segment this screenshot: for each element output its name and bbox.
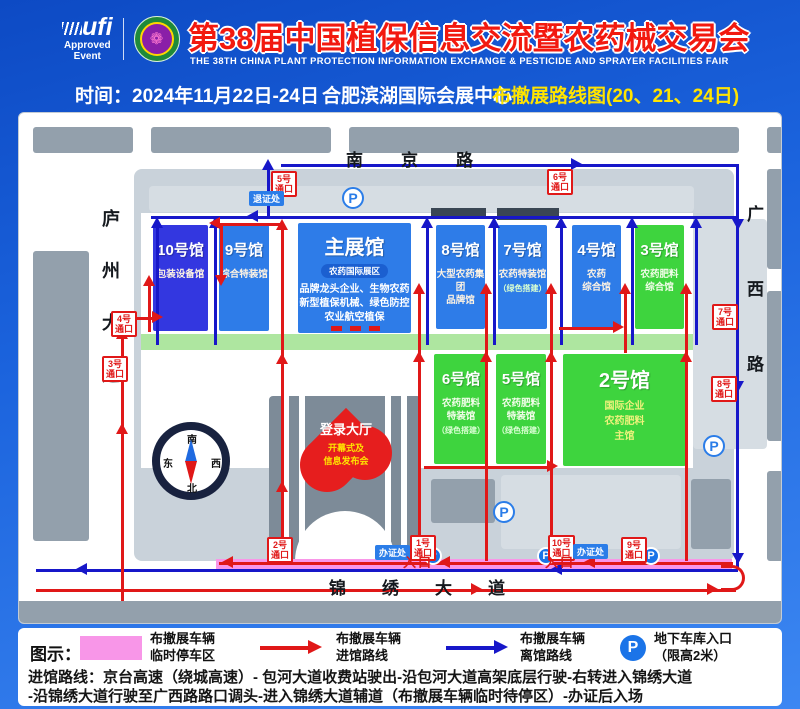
hall-3-sub2: 综合馆 bbox=[645, 281, 674, 294]
hall-main-line1: 品牌龙头企业、生物农药 bbox=[300, 283, 410, 296]
parking-icon: P bbox=[703, 435, 725, 457]
badge-checkout: 退证处 bbox=[249, 191, 284, 206]
route-dashes-red bbox=[331, 326, 381, 331]
route-line-red bbox=[685, 293, 688, 561]
hall-4-sub1: 农药 bbox=[587, 268, 606, 281]
hall-6-sub1: 农药肥料 bbox=[442, 397, 480, 410]
legend-blue-arrow bbox=[446, 646, 496, 650]
city-block bbox=[767, 471, 782, 561]
legend-item4: 地下车库入口 （限高2米） bbox=[654, 630, 732, 664]
arrowhead-red bbox=[613, 321, 624, 333]
south-parking-slab bbox=[501, 475, 681, 549]
arrowhead-red bbox=[222, 556, 233, 568]
arrowhead-red bbox=[215, 275, 227, 286]
info-time: 时间：2024年11月22日-24日 bbox=[75, 81, 319, 108]
header-divider bbox=[123, 18, 124, 60]
hall-3: 3号馆 农药肥料 综合馆 bbox=[635, 225, 684, 329]
gate-9-word: 通口 bbox=[625, 550, 643, 560]
hall-7-sub1: 农药特装馆 bbox=[499, 268, 547, 281]
badge-checkin-2: 办证处 bbox=[573, 544, 608, 559]
hall-6: 6号馆 农药肥料 特装馆 （绿色搭建） bbox=[434, 354, 488, 464]
route-map-title: 布撤展路线图(20、21、24日) bbox=[492, 81, 739, 108]
compass-icon: 南 北 东 西 bbox=[152, 422, 230, 500]
hall-main-line2: 新型植保机械、绿色防控 bbox=[300, 297, 410, 310]
north-parking-strip bbox=[149, 186, 694, 212]
legend-item3: 布撤展车辆 离馆路线 bbox=[520, 630, 585, 664]
fair-title: 第38届中国植保信息交流暨农药械交易会 bbox=[188, 13, 749, 58]
gate-8: 8号 通口 bbox=[711, 376, 737, 402]
arrowhead-blue bbox=[421, 217, 433, 228]
road-south-label: 锦绣大道 bbox=[329, 574, 541, 599]
arrowhead-red bbox=[680, 283, 692, 294]
entrance-label-2: 入口 bbox=[545, 552, 575, 571]
arrowhead-red bbox=[152, 311, 163, 323]
gate-3: 3号 通口 bbox=[102, 356, 128, 382]
green-walkway bbox=[141, 334, 693, 350]
building-detail bbox=[401, 396, 407, 561]
road-north-label: 南京路 bbox=[346, 146, 511, 171]
entrance-label: 入口 bbox=[403, 552, 433, 571]
arrowhead-red bbox=[276, 481, 288, 492]
route-line-red bbox=[418, 293, 421, 561]
legend-item3-line2: 离馆路线 bbox=[520, 647, 585, 664]
hall-7: 7号馆 农药特装馆 （绿色搭建） bbox=[498, 225, 547, 329]
gate-9-num: 9号 bbox=[625, 540, 643, 550]
hall-6-note: （绿色搭建） bbox=[437, 425, 485, 436]
arrowhead-blue bbox=[151, 217, 163, 228]
gate-7-num: 7号 bbox=[716, 307, 734, 317]
ufi-approved: Approved bbox=[62, 40, 113, 51]
arrowhead-red bbox=[480, 351, 492, 362]
compass-needle-red bbox=[185, 461, 197, 484]
gate-6-num: 6号 bbox=[551, 172, 569, 182]
hall-2: 2号馆 国际企业 农药肥料 主馆 bbox=[563, 354, 686, 466]
route-line-red bbox=[148, 284, 151, 332]
hall-5-sub1: 农药肥料 bbox=[502, 397, 540, 410]
legend-blue-arrowhead bbox=[494, 640, 508, 654]
gate-8-num: 8号 bbox=[715, 379, 733, 389]
hall-7-name: 7号馆 bbox=[503, 239, 541, 260]
arrowhead-red bbox=[545, 283, 557, 294]
legend-heading: 图示： bbox=[30, 640, 81, 665]
login-hall-title: 登录大厅 bbox=[300, 419, 392, 438]
hall-8: 8号馆 大型农药集团 品牌馆 bbox=[436, 225, 485, 329]
hall-8-name: 8号馆 bbox=[441, 239, 479, 260]
arrowhead-red bbox=[707, 583, 718, 595]
city-block bbox=[767, 127, 782, 153]
gate-9: 9号 通口 bbox=[621, 537, 647, 563]
hall-3-sub1: 农药肥料 bbox=[640, 268, 678, 281]
hall-6-name: 6号馆 bbox=[442, 368, 480, 389]
legend-item4-line2: （限高2米） bbox=[654, 647, 732, 664]
parking-icon: P bbox=[493, 501, 515, 523]
route-line-red bbox=[485, 293, 488, 561]
hall-7-note: （绿色搭建） bbox=[499, 283, 547, 294]
city-block bbox=[151, 127, 331, 153]
legend-red-arrow bbox=[260, 646, 310, 650]
arrowhead-blue bbox=[76, 563, 87, 575]
gate-2-word: 通口 bbox=[271, 550, 289, 560]
login-hall-sub2: 信息发布会 bbox=[300, 454, 392, 467]
arrowhead-blue bbox=[571, 158, 582, 170]
hall-2-name: 2号馆 bbox=[599, 364, 650, 393]
hall-10-name: 10号馆 bbox=[157, 239, 204, 260]
arrowhead-red bbox=[209, 217, 220, 229]
legend-item1-line1: 布撤展车辆 bbox=[150, 630, 215, 647]
map-panel: 登录大厅 开幕式及 信息发布会 南 北 东 西 10号馆 包装设备馆 9号馆 综… bbox=[18, 112, 782, 624]
hall-3-name: 3号馆 bbox=[640, 239, 678, 260]
arrowhead-red bbox=[276, 353, 288, 364]
route-line-blue bbox=[426, 227, 429, 345]
gate-4: 4号 通口 bbox=[111, 311, 137, 337]
route-text-line1: 进馆路线：京台高速（绕城高速）- 包河大道收费站驶出-沿包河大道高架底层行驶-右… bbox=[28, 668, 692, 688]
compass-west: 西 bbox=[211, 455, 221, 470]
route-uturn-red bbox=[721, 565, 745, 591]
hall-2-sub1: 国际企业 bbox=[605, 399, 645, 414]
hall-4-sub2: 综合馆 bbox=[582, 281, 611, 294]
arrowhead-blue bbox=[488, 217, 500, 228]
legend-parking-icon: P bbox=[620, 635, 646, 661]
route-line-red bbox=[216, 223, 282, 226]
route-line-blue bbox=[156, 227, 159, 345]
route-line-red bbox=[220, 226, 223, 278]
gate-6: 6号 通口 bbox=[547, 169, 573, 195]
gate-7: 7号 通口 bbox=[712, 304, 738, 330]
login-hall: 登录大厅 开幕式及 信息发布会 bbox=[300, 419, 392, 479]
hall-8-sub1: 大型农药集团 bbox=[436, 268, 485, 294]
hall-6-sub2: 特装馆 bbox=[447, 410, 476, 423]
legend-item2-line1: 布撤展车辆 bbox=[336, 630, 401, 647]
ufi-event: Event bbox=[62, 51, 113, 62]
hall-9-name: 9号馆 bbox=[225, 239, 263, 260]
ufi-logo: ufi Approved Event bbox=[62, 16, 113, 62]
gate-8-word: 通口 bbox=[715, 389, 733, 399]
route-line-blue bbox=[631, 227, 634, 345]
info-venue: 合肥滨湖国际会展中心 bbox=[322, 81, 512, 108]
road-east-label: 广西路 bbox=[741, 205, 766, 430]
gate-3-num: 3号 bbox=[106, 359, 124, 369]
gate-4-num: 4号 bbox=[115, 314, 133, 324]
hall-5-sub2: 特装馆 bbox=[507, 410, 536, 423]
gate-5-num: 5号 bbox=[275, 174, 293, 184]
city-block bbox=[767, 169, 782, 269]
gate-3-word: 通口 bbox=[106, 369, 124, 379]
hall-5-name: 5号馆 bbox=[502, 368, 540, 389]
city-block bbox=[767, 291, 782, 441]
hall-10-sub: 包装设备馆 bbox=[157, 268, 205, 281]
arrowhead-red bbox=[547, 460, 558, 472]
route-line-blue bbox=[36, 569, 738, 572]
arrowhead-red bbox=[619, 283, 631, 294]
legend-item2-line2: 进馆路线 bbox=[336, 647, 401, 664]
hall-4: 4号馆 农药 综合馆 bbox=[572, 225, 621, 329]
hall-main-badge: 农药国际展区 bbox=[321, 264, 388, 278]
hall-2-sub3: 主馆 bbox=[615, 429, 635, 444]
legend-item2: 布撤展车辆 进馆路线 bbox=[336, 630, 401, 664]
fair-emblem-core: ❁ bbox=[140, 22, 174, 56]
legend-item1: 布撤展车辆 临时停车区 bbox=[150, 630, 215, 664]
route-line-red bbox=[550, 293, 553, 561]
gate-4-word: 通口 bbox=[115, 324, 133, 334]
route-line-blue bbox=[695, 227, 698, 345]
fair-emblem-icon: ❁ bbox=[134, 16, 180, 62]
arrowhead-red bbox=[116, 423, 128, 434]
fair-subtitle: THE 38TH CHINA PLANT PROTECTION INFORMAT… bbox=[190, 56, 729, 66]
hall-main-name: 主展馆 bbox=[325, 231, 385, 260]
route-line-red bbox=[624, 293, 627, 353]
south-building bbox=[691, 479, 731, 549]
poster: ufi Approved Event ❁ 第38届中国植保信息交流暨农药械交易会… bbox=[0, 0, 800, 709]
hall-main-line3: 农业航空植保 bbox=[325, 311, 385, 324]
route-line-blue bbox=[214, 227, 217, 345]
login-hall-sub1: 开幕式及 bbox=[300, 441, 392, 454]
gate-6-word: 通口 bbox=[551, 182, 569, 192]
ufi-wing-icon bbox=[62, 22, 82, 35]
header-logos: ufi Approved Event ❁ bbox=[62, 16, 180, 62]
route-line-blue bbox=[493, 227, 496, 345]
legend-pink-swatch bbox=[80, 636, 142, 660]
route-line-red bbox=[281, 223, 284, 559]
arrowhead-red bbox=[413, 351, 425, 362]
hall-8-sub2: 品牌馆 bbox=[446, 294, 475, 307]
city-block bbox=[33, 251, 89, 541]
legend-panel: 图示： 布撤展车辆 临时停车区 布撤展车辆 进馆路线 布撤展车辆 离馆路线 P … bbox=[18, 628, 782, 706]
gate-7-word: 通口 bbox=[716, 317, 734, 327]
hall-4-name: 4号馆 bbox=[577, 239, 615, 260]
legend-red-arrowhead bbox=[308, 640, 322, 654]
parking-icon: P bbox=[342, 187, 364, 209]
arrowhead-blue bbox=[555, 217, 567, 228]
arrowhead-red bbox=[680, 351, 692, 362]
arrowhead-red bbox=[480, 283, 492, 294]
gate-2-num: 2号 bbox=[271, 540, 289, 550]
route-text-line2: -沿锦绣大道行驶至广西路路口调头-进入锦绣大道辅道（布撤展车辆临时待停区）-办证… bbox=[28, 687, 643, 707]
gate-1-num: 1号 bbox=[414, 538, 432, 548]
legend-item3-line1: 布撤展车辆 bbox=[520, 630, 585, 647]
hall-2-sub2: 农药肥料 bbox=[605, 414, 645, 429]
arrowhead-blue bbox=[247, 210, 258, 222]
arrowhead-red bbox=[143, 275, 155, 286]
legend-item1-line2: 临时停车区 bbox=[150, 647, 215, 664]
arrowhead-blue bbox=[732, 553, 744, 564]
arrowhead-blue bbox=[690, 217, 702, 228]
hall-5: 5号馆 农药肥料 特装馆 （绿色搭建） bbox=[496, 354, 546, 464]
city-block bbox=[33, 127, 133, 153]
hall-9-sub: 综合特装馆 bbox=[220, 268, 268, 281]
city-block-south bbox=[19, 601, 782, 624]
legend-item4-line1: 地下车库入口 bbox=[654, 630, 732, 647]
ufi-name: ufi bbox=[82, 13, 113, 41]
arrowhead-blue bbox=[626, 217, 638, 228]
arrowhead-blue bbox=[262, 159, 274, 170]
route-line-red bbox=[559, 327, 615, 330]
route-line-blue bbox=[151, 216, 736, 219]
gate-2: 2号 通口 bbox=[267, 537, 293, 563]
hall-5-note: （绿色搭建） bbox=[497, 425, 545, 436]
compass-east: 东 bbox=[163, 455, 173, 470]
route-line-red bbox=[424, 466, 549, 469]
arrowhead-red bbox=[413, 283, 425, 294]
hall-main: 主展馆 农药国际展区 品牌龙头企业、生物农药 新型植保机械、绿色防控 农业航空植… bbox=[298, 223, 411, 333]
arrowhead-red bbox=[545, 351, 557, 362]
gate-10-num: 10号 bbox=[552, 538, 571, 548]
compass-needle-blue bbox=[185, 439, 197, 462]
